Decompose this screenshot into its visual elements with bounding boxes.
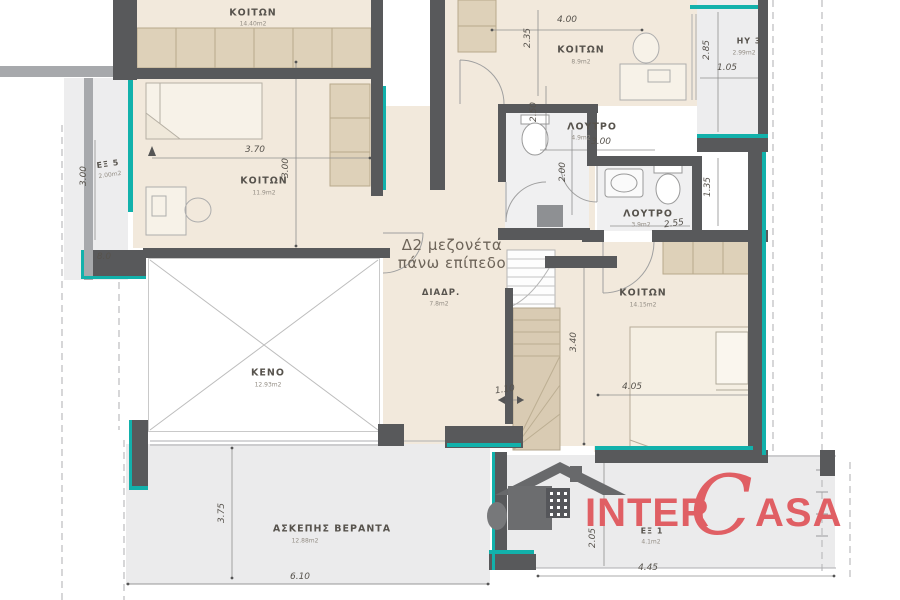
wall-segment <box>498 228 590 240</box>
wall-segment <box>378 424 404 446</box>
room-label-bedroom-top-left: ΚΟΙΤΩΝ <box>229 8 276 19</box>
wall-segment <box>0 66 113 77</box>
wall-segment <box>748 152 762 455</box>
teal-wall-strip <box>697 134 768 138</box>
wall-segment <box>84 250 146 276</box>
dim-405: 4.05 <box>622 382 642 392</box>
plan-title-line1: Δ2 μεζονέτα <box>402 236 502 254</box>
room-area-bedroom-top-mid: 8.9m2 <box>571 59 590 66</box>
floor-plan: Δ2 μεζονέτα πάνω επίπεδο ΚΟΙΤΩΝ 14.40m2 … <box>0 0 900 600</box>
wall-segment <box>132 420 148 486</box>
wall-segment <box>430 0 445 190</box>
room-label-bathroom-upper: ΛΟΥΤΡΟ <box>567 122 617 133</box>
teal-wall-strip <box>132 486 148 490</box>
room-area-bedroom-top-left: 14.40m2 <box>240 21 267 28</box>
wall-segment <box>545 256 617 268</box>
dim-135: 1.35 <box>703 177 713 197</box>
teal-wall-strip <box>81 250 84 279</box>
veranda-floor <box>126 444 490 584</box>
stair-stringer-wall <box>505 288 513 424</box>
wall-segment <box>113 68 371 79</box>
wall-segment <box>692 156 702 240</box>
dim-200: 2.00 <box>558 162 568 182</box>
room-area-hall: 7.8m2 <box>429 301 448 308</box>
wall-segment <box>371 0 383 196</box>
teal-wall-strip <box>489 550 534 554</box>
teal-wall-strip <box>447 443 521 447</box>
dim-80: 8.0 <box>97 252 111 262</box>
wall-segment <box>498 104 598 113</box>
plan-title-line2: πάνω επίπεδο <box>398 254 506 272</box>
room-label-bedroom-right: ΚΟΙΤΩΝ <box>619 288 666 299</box>
room-area-void: 12.93m2 <box>255 382 282 389</box>
bedroom-left-floor <box>133 79 371 248</box>
dim-250: 2.50 <box>529 102 539 122</box>
room-label-veranda: ΑΣΚΕΠΗΣ ΒΕΡΑΝΤΑ <box>273 524 391 535</box>
dim-445: 4.45 <box>638 563 658 573</box>
teal-wall-strip <box>690 5 758 9</box>
room-label-balcony-top-right: ΗΥ 3 <box>737 37 762 46</box>
void-floor <box>148 258 380 432</box>
wall-segment <box>143 248 390 258</box>
room-label-void: ΚΕΝΟ <box>251 368 285 379</box>
room-label-bathroom-lower: ΛΟΥΤΡΟ <box>623 209 673 220</box>
dim-300-left: 3.00 <box>281 158 291 178</box>
wall-segment <box>587 156 700 166</box>
wall-segment <box>595 450 768 463</box>
room-area-balcony-bottom: 4.1m2 <box>641 539 660 546</box>
room-area-bedroom-right: 14.15m2 <box>630 302 657 309</box>
wall-segment <box>489 554 536 570</box>
room-area-bathroom-upper: 4.9m2 <box>571 135 590 142</box>
room-label-hall: ΔΙΑΔΡ. <box>422 288 460 298</box>
dim-300-ex5: 3.00 <box>79 166 89 186</box>
dim-340: 3.40 <box>569 332 579 352</box>
balcony-bottom-floor <box>507 455 835 568</box>
room-label-balcony-bottom: ΕΞ 1 <box>641 527 664 536</box>
teal-wall-strip <box>129 420 132 490</box>
room-area-bathroom-lower: 3.9m2 <box>631 222 650 229</box>
wall-segment <box>820 450 835 476</box>
dim-300-bath: 3.00 <box>591 137 611 147</box>
room-area-veranda: 12.88m2 <box>292 538 319 545</box>
dim-205: 2.05 <box>588 528 598 548</box>
wall-segment <box>758 0 768 140</box>
teal-window-strip <box>128 80 133 212</box>
teal-wall-strip <box>84 276 146 279</box>
room-area-bedroom-left: 11.9m2 <box>252 190 275 197</box>
dim-400: 4.00 <box>557 15 577 25</box>
teal-wall-strip <box>595 446 753 450</box>
room-label-bedroom-top-mid: ΚΟΙΤΩΝ <box>557 45 604 56</box>
teal-wall-strip <box>383 86 386 190</box>
wall-segment <box>498 104 506 182</box>
hall-floor-patch <box>371 196 383 248</box>
dim-375: 3.75 <box>217 503 227 523</box>
teal-wall-strip <box>762 152 766 455</box>
bedroom-right-floor <box>594 242 752 452</box>
dim-610: 6.10 <box>290 572 310 582</box>
room-area-balcony-top-right: 2.99m2 <box>732 50 755 57</box>
wall-segment <box>697 138 768 152</box>
dim-105: 1.05 <box>717 63 737 73</box>
dim-285: 2.85 <box>702 40 712 60</box>
wall-segment <box>582 232 603 242</box>
dim-235: 2.35 <box>523 28 533 48</box>
dim-370: 3.70 <box>245 145 265 155</box>
